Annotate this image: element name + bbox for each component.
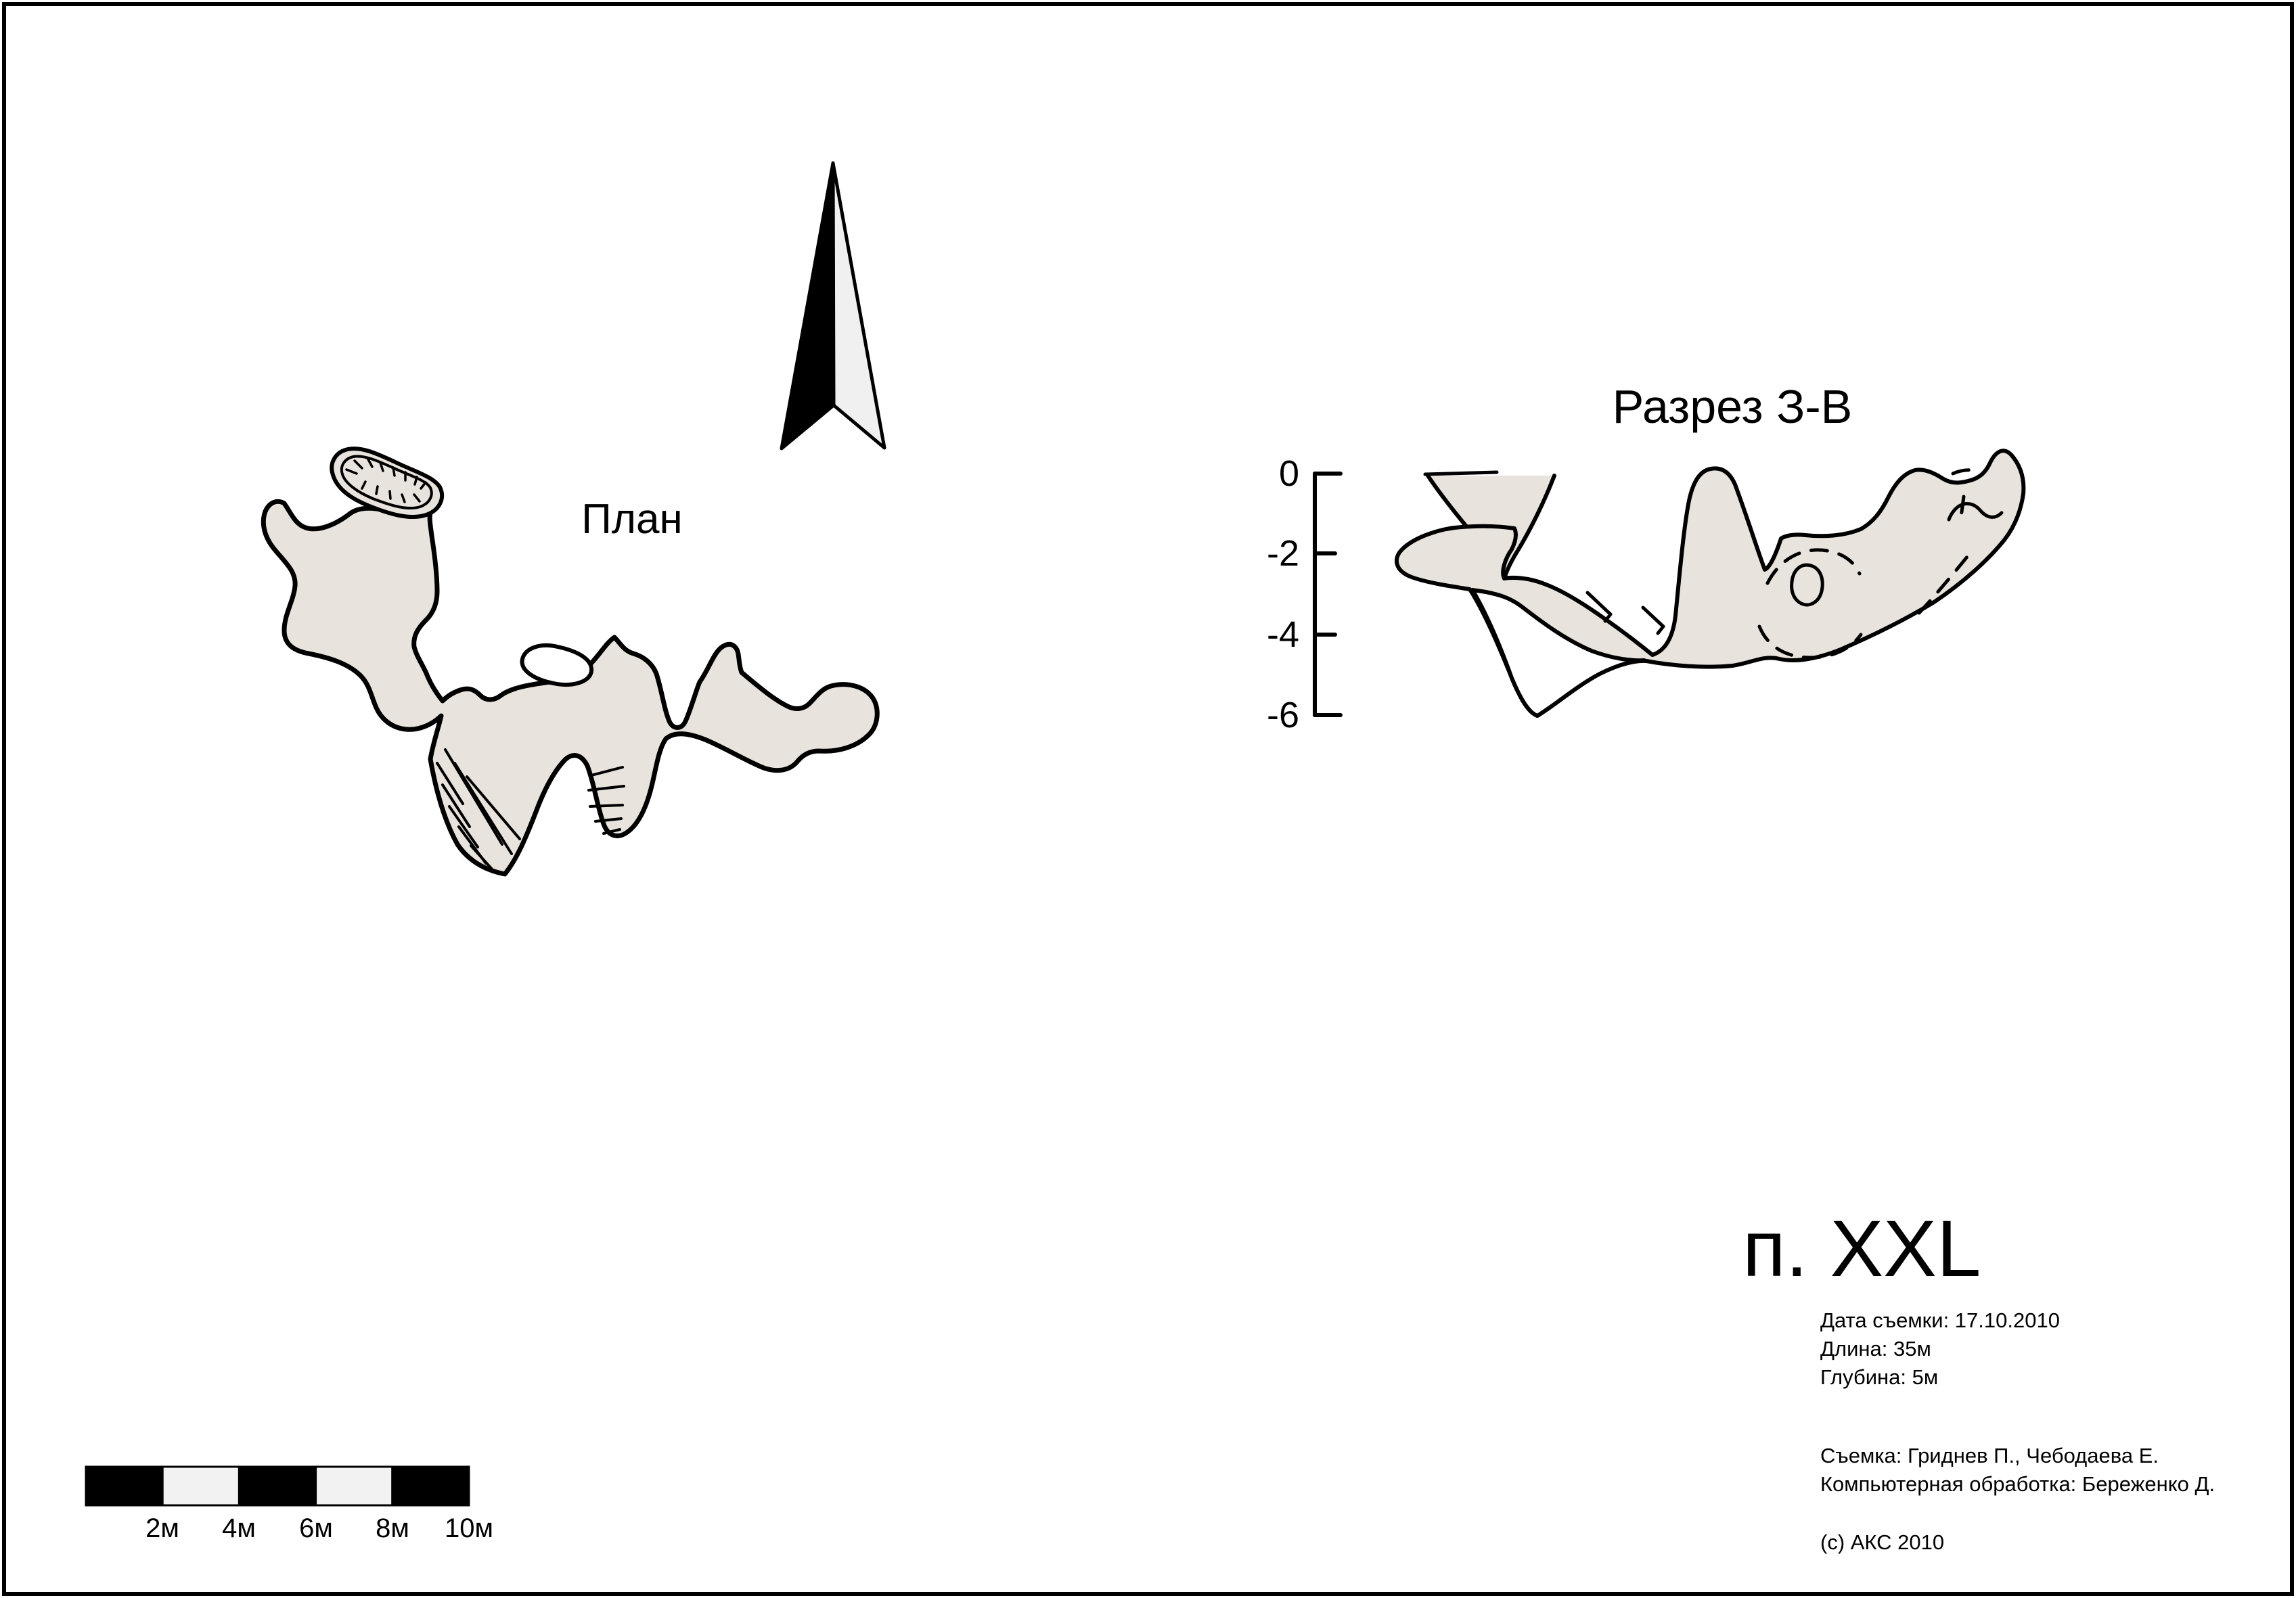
plan-pillar-island	[522, 645, 592, 685]
plan-title: План	[581, 496, 682, 543]
svg-text:6м: 6м	[299, 1513, 333, 1543]
svg-text:0: 0	[1279, 453, 1299, 494]
section-depth-labels: 0 -2 -4 -6	[1267, 453, 1299, 735]
svg-text:4м: 4м	[222, 1513, 256, 1543]
cave-length: Длина: 35м	[1820, 1337, 1931, 1361]
section-depth-scale	[1315, 474, 1341, 715]
scale-bar: 2м 4м 6м 8м 10м	[86, 1467, 493, 1543]
cave-name: п. XXL	[1742, 1204, 1981, 1294]
plan-entrance-symbol	[332, 449, 442, 517]
svg-text:-2: -2	[1267, 533, 1299, 574]
page-border	[4, 4, 2292, 1594]
title-block: п. XXL Дата съемки: 17.10.2010 Длина: 35…	[1742, 1204, 2215, 1554]
cave-survey-sheet: План Разрез З-В 0 -2 -4 -6	[0, 0, 2296, 1598]
survey-date: Дата съемки: 17.10.2010	[1820, 1308, 2060, 1332]
svg-text:8м: 8м	[376, 1513, 409, 1543]
svg-text:10м: 10м	[445, 1513, 493, 1543]
copyright: (c) АКС 2010	[1820, 1530, 1944, 1554]
section-title: Разрез З-В	[1613, 380, 1853, 433]
section-view-drawing: Разрез З-В 0 -2 -4 -6	[1267, 380, 2023, 735]
svg-text:-6: -6	[1267, 695, 1299, 735]
svg-text:-4: -4	[1267, 614, 1299, 655]
cave-depth: Глубина: 5м	[1820, 1365, 1938, 1389]
processing-credit: Компьютерная обработка: Береженко Д.	[1820, 1472, 2215, 1496]
north-arrow-icon	[782, 163, 884, 449]
plan-view-drawing: План	[263, 449, 877, 874]
surveyors: Съемка: Гриднев П., Чебодаева Е.	[1820, 1444, 2159, 1467]
plan-cave-outline	[263, 501, 877, 874]
svg-text:2м: 2м	[145, 1513, 179, 1543]
scale-bar-labels: 2м 4м 6м 8м 10м	[145, 1513, 493, 1543]
